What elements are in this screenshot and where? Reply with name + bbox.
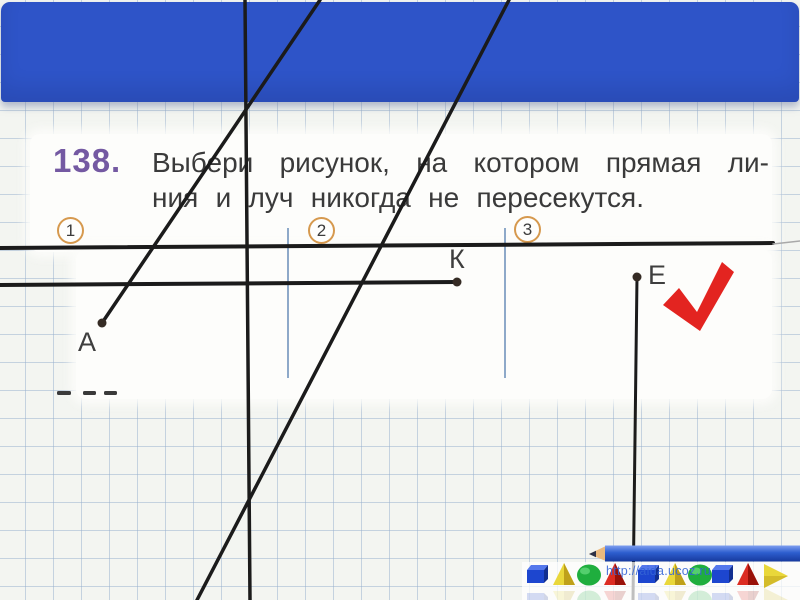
cutoff-text-dash [57, 391, 71, 395]
point-e-label: Е [648, 260, 666, 291]
blue-cube-icon [638, 593, 659, 600]
yellow-cone-icon [764, 588, 788, 600]
polygon [729, 565, 733, 583]
ellipse [577, 565, 601, 586]
straight-line-horizontal-faint [773, 241, 800, 244]
red-pyramid-icon [737, 591, 759, 600]
task-text-line2: ния и луч никогда не пересекутся. [152, 181, 644, 215]
polygon [764, 564, 788, 588]
ellipse [580, 568, 590, 575]
pencil-wood-tip [589, 546, 607, 562]
pencil-icon [589, 546, 800, 562]
polygon [564, 563, 575, 585]
point-k-label: К [449, 244, 465, 275]
point-a-label: А [78, 327, 96, 358]
pencil-body [605, 546, 800, 562]
polygon [655, 593, 659, 600]
header-band [1, 2, 799, 102]
ellipse [577, 591, 601, 600]
polygon [553, 563, 575, 585]
ellipse [688, 591, 712, 600]
polygon [737, 591, 759, 600]
figure-2-badge[interactable]: 2 [308, 217, 335, 244]
blue-cube-icon [712, 593, 733, 600]
green-sphere-icon [577, 591, 601, 600]
pencil-graphite-tip [589, 551, 596, 558]
polygon [737, 563, 759, 585]
yellow-pyramid-icon [553, 591, 575, 600]
task-number: 138. [53, 142, 121, 180]
yellow-cone-icon [764, 564, 788, 588]
blue-cube-icon [527, 565, 548, 583]
yellow-pyramid-icon [664, 591, 686, 600]
rect [712, 593, 729, 600]
toolbar-shapes-reflection [527, 588, 788, 600]
polygon [712, 565, 733, 570]
polygon [675, 591, 686, 600]
blue-cube-icon [712, 565, 733, 583]
polygon [544, 565, 548, 583]
polygon [729, 593, 733, 600]
polygon [615, 591, 626, 600]
rect [638, 593, 655, 600]
polygon [764, 588, 788, 600]
polygon [664, 591, 686, 600]
red-pyramid-icon [737, 563, 759, 585]
polygon [544, 593, 548, 600]
watermark-url: http://aida.ucoz.ru [606, 564, 711, 578]
polygon [553, 591, 575, 600]
polygon [764, 588, 788, 600]
figure-1-badge[interactable]: 1 [57, 217, 84, 244]
rect [712, 570, 729, 583]
polygon [764, 576, 788, 588]
polygon [748, 563, 759, 585]
red-pyramid-icon [604, 591, 626, 600]
yellow-pyramid-icon [553, 563, 575, 585]
polygon [604, 591, 626, 600]
rect [527, 570, 544, 583]
rect [527, 593, 544, 600]
slide: 138. Выбери рисунок, на котором прямая л… [0, 0, 800, 600]
polygon [564, 591, 575, 600]
scan-figures-area [76, 250, 772, 399]
polygon [748, 591, 759, 600]
green-sphere-icon [688, 591, 712, 600]
figure-3-badge[interactable]: 3 [514, 216, 541, 243]
task-text-line1: Выбери рисунок, на котором прямая ли- [152, 146, 769, 180]
blue-cube-icon [527, 593, 548, 600]
polygon [527, 565, 548, 570]
green-sphere-icon [577, 565, 601, 586]
